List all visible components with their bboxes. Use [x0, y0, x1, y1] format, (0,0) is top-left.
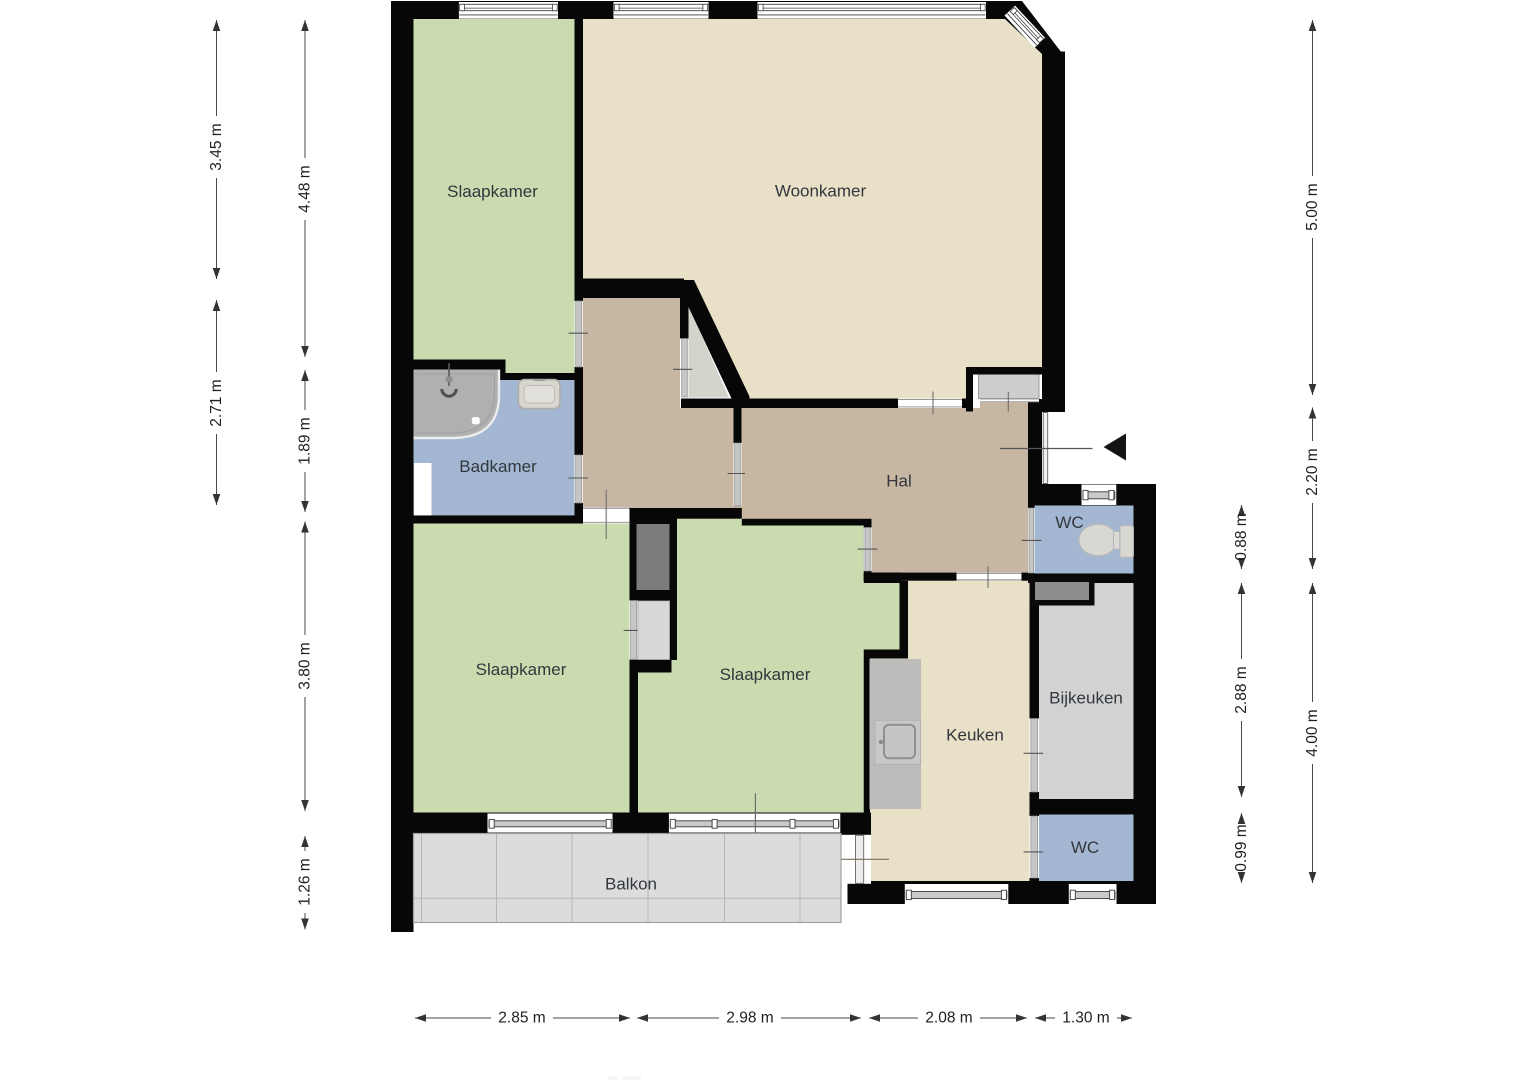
svg-text:Hal: Hal: [886, 472, 912, 491]
svg-text:2.98 m: 2.98 m: [726, 1010, 773, 1027]
svg-text:Bijkeuken: Bijkeuken: [1049, 689, 1123, 708]
svg-text:WC: WC: [1071, 838, 1099, 857]
svg-text:WC: WC: [1055, 513, 1083, 532]
svg-text:Slaapkamer: Slaapkamer: [720, 665, 811, 684]
svg-text:4.00 m: 4.00 m: [1304, 709, 1321, 756]
svg-text:2.71 m: 2.71 m: [208, 379, 225, 426]
svg-text:5.00 m: 5.00 m: [1304, 183, 1321, 230]
svg-text:2.08 m: 2.08 m: [925, 1010, 972, 1027]
svg-text:Slaapkamer: Slaapkamer: [476, 660, 567, 679]
svg-text:1.26 m: 1.26 m: [297, 858, 314, 905]
svg-text:2.20 m: 2.20 m: [1304, 448, 1321, 495]
svg-text:1.30 m: 1.30 m: [1062, 1010, 1109, 1027]
svg-text:Badkamer: Badkamer: [459, 457, 537, 476]
svg-text:3.45 m: 3.45 m: [208, 123, 225, 170]
svg-text:0.88 m: 0.88 m: [1233, 513, 1250, 560]
svg-text:4.48 m: 4.48 m: [297, 165, 314, 212]
svg-text:Keuken: Keuken: [946, 726, 1004, 745]
svg-text:3.80 m: 3.80 m: [297, 642, 314, 689]
svg-text:Woonkamer: Woonkamer: [775, 182, 867, 201]
svg-text:2.88 m: 2.88 m: [1233, 666, 1250, 713]
svg-text:0.99 m: 0.99 m: [1233, 824, 1250, 871]
svg-text:1.89 m: 1.89 m: [297, 417, 314, 464]
svg-text:Balkon: Balkon: [605, 875, 657, 894]
svg-text:2.85 m: 2.85 m: [498, 1010, 545, 1027]
svg-text:Slaapkamer: Slaapkamer: [447, 182, 538, 201]
